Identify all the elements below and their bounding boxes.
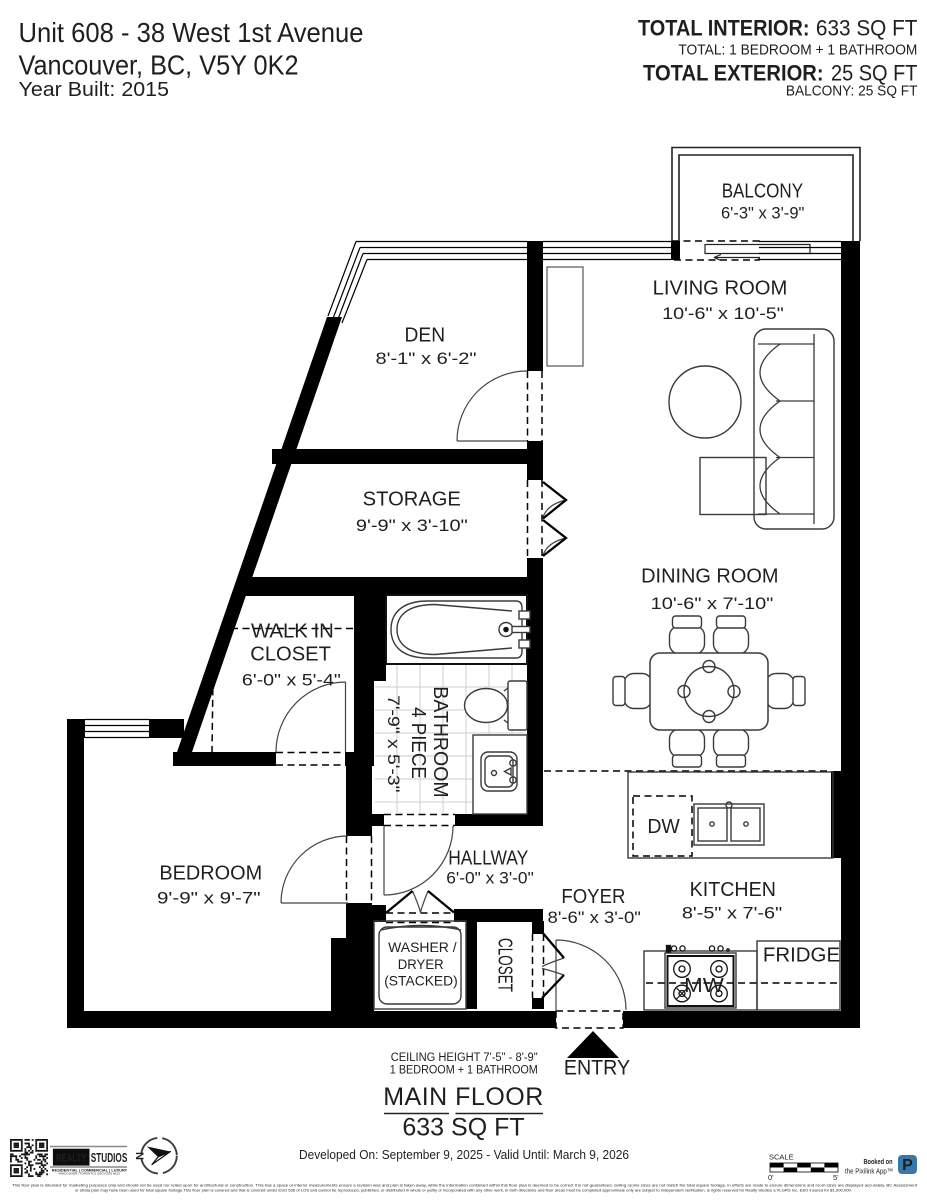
svg-text:(STACKED): (STACKED) [384,973,458,989]
svg-text:DINING ROOM: DINING ROOM [641,566,778,588]
svg-text:Unit 608 - 38 West 1st Avenue: Unit 608 - 38 West 1st Avenue [19,17,364,48]
svg-text:REALTY: REALTY [56,1153,87,1165]
svg-text:633 SQ FT: 633 SQ FT [816,16,918,41]
svg-text:CLOSET: CLOSET [250,644,331,666]
svg-text:BEDROOM: BEDROOM [159,863,262,885]
svg-text:Booked on: Booked on [864,1157,893,1166]
svg-text:7'-9" x 5'-3": 7'-9" x 5'-3" [384,695,403,792]
svg-text:Developed On: September 9, 202: Developed On: September 9, 2025 - Valid … [299,1148,629,1162]
svg-text:6'-3" x 3'-9": 6'-3" x 3'-9" [721,204,805,223]
svg-text:CLOSET: CLOSET [493,938,515,992]
svg-text:0': 0' [768,1173,774,1182]
svg-text:N: N [133,1152,145,1160]
svg-text:DEN: DEN [405,324,446,346]
svg-text:6'-0" x 5'-4": 6'-0" x 5'-4" [242,670,341,689]
svg-text:STORAGE: STORAGE [363,489,461,511]
svg-text:FRIDGE: FRIDGE [763,944,840,966]
svg-text:9'-9" x 9'-7": 9'-9" x 9'-7" [157,889,261,908]
svg-text:BALCONY: 25 SQ FT: BALCONY: 25 SQ FT [786,82,918,99]
svg-text:or strata plan may have been u: or strata plan may have been used for to… [75,1188,852,1193]
svg-text:MW: MW [684,975,724,997]
svg-text:1 BEDROOM + 1 BATHROOM: 1 BEDROOM + 1 BATHROOM [390,1064,538,1076]
svg-text:4 PIECE: 4 PIECE [407,707,429,779]
svg-text:P: P [902,1157,913,1174]
svg-text:SCALE: SCALE [769,1153,794,1162]
svg-text:WASHER /: WASHER / [388,939,457,955]
svg-text:the Pixilink App™: the Pixilink App™ [845,1167,893,1176]
svg-text:TOTAL INTERIOR:: TOTAL INTERIOR: [638,16,810,41]
svg-text:DW: DW [647,816,680,838]
svg-text:KITCHEN: KITCHEN [690,879,776,901]
svg-text:VANCOUVER | TORONTO | OSOYOOS: VANCOUVER | TORONTO | OSOYOOS #123 [58,1172,120,1176]
svg-text:FOYER: FOYER [561,886,625,908]
svg-text:CEILING HEIGHT 7'-5" - 8'-9": CEILING HEIGHT 7'-5" - 8'-9" [391,1052,538,1064]
svg-text:9'-9" x 3'-10": 9'-9" x 3'-10" [356,516,468,535]
svg-text:MAIN FLOOR: MAIN FLOOR [383,1083,544,1111]
svg-text:6'-0" x 3'-0": 6'-0" x 3'-0" [446,869,534,888]
svg-text:10'-6" x 7'-10": 10'-6" x 7'-10" [651,594,774,613]
svg-text:BALCONY: BALCONY [722,180,803,202]
svg-text:ENTRY: ENTRY [564,1057,630,1080]
svg-text:STUDIOS: STUDIOS [91,1151,128,1165]
svg-text:5': 5' [833,1173,839,1182]
svg-text:8'-1" x 6'-2": 8'-1" x 6'-2" [376,349,477,368]
svg-text:10'-6" x 10'-5": 10'-6" x 10'-5" [662,304,784,323]
svg-text:8'-5" x 7'-6": 8'-5" x 7'-6" [682,903,782,922]
svg-text:HALLWAY: HALLWAY [448,848,528,870]
svg-text:TOTAL: 1 BEDROOM + 1 BATHROOM: TOTAL: 1 BEDROOM + 1 BATHROOM [678,41,917,58]
svg-text:Vancouver, BC, V5Y 0K2: Vancouver, BC, V5Y 0K2 [19,50,299,81]
svg-text:DRYER: DRYER [398,956,444,972]
svg-text:WALK IN: WALK IN [251,620,334,642]
svg-text:Year Built: 2015: Year Built: 2015 [19,78,170,101]
svg-text:LIVING ROOM: LIVING ROOM [653,278,788,300]
svg-text:8'-6" x 3'-0": 8'-6" x 3'-0" [548,908,641,927]
svg-text:BATHROOM: BATHROOM [429,686,451,797]
svg-text:633 SQ FT: 633 SQ FT [402,1114,524,1142]
